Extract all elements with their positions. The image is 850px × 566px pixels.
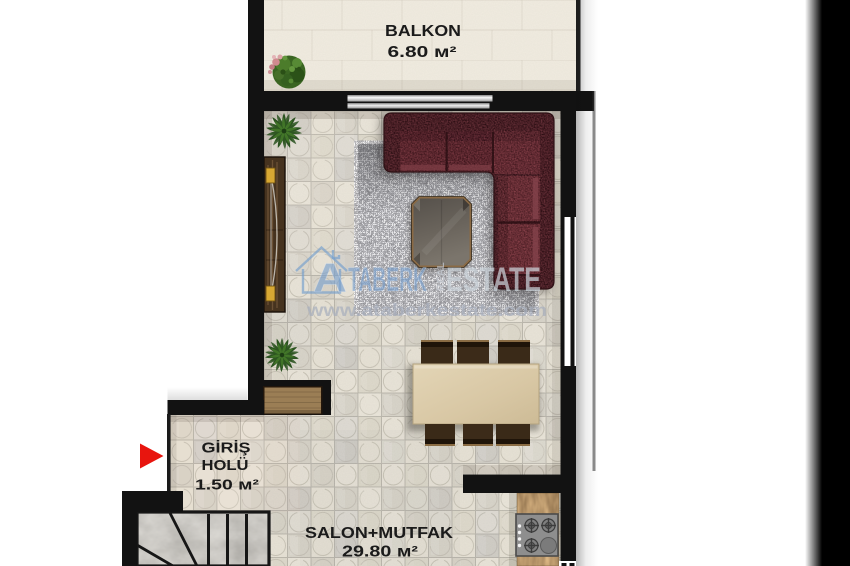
svg-text:SALON+MUTFAK: SALON+MUTFAK: [305, 525, 453, 542]
svg-text:REAL: REAL: [436, 262, 447, 291]
svg-text:BALKON: BALKON: [385, 23, 461, 40]
svg-text:ESTATE: ESTATE: [446, 261, 541, 299]
svg-text:HOLÜ: HOLÜ: [202, 457, 249, 474]
svg-text:TABERK: TABERK: [348, 261, 427, 299]
svg-text:29.80 м²: 29.80 м²: [342, 544, 418, 561]
svg-text:6.80 м²: 6.80 м²: [388, 44, 457, 61]
svg-text:www.ataberkestate.com: www.ataberkestate.com: [306, 300, 547, 320]
svg-text:GİRİŞ: GİRİŞ: [202, 440, 251, 457]
svg-text:A: A: [313, 255, 347, 301]
svg-text:1.50 м²: 1.50 м²: [195, 478, 259, 494]
